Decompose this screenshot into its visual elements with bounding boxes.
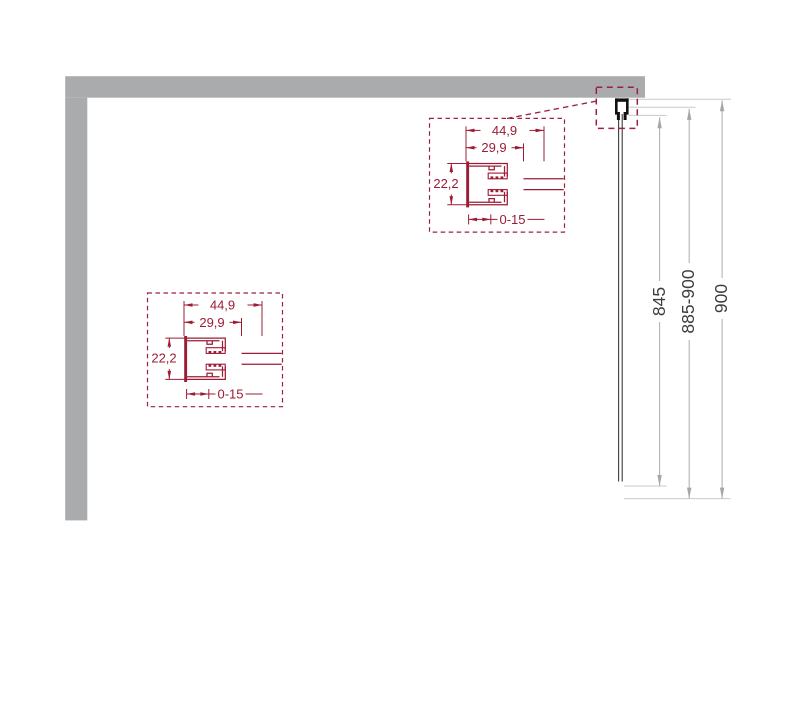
svg-text:885-900: 885-900 bbox=[678, 269, 698, 333]
svg-text:900: 900 bbox=[711, 284, 731, 313]
svg-text:845: 845 bbox=[649, 287, 669, 316]
